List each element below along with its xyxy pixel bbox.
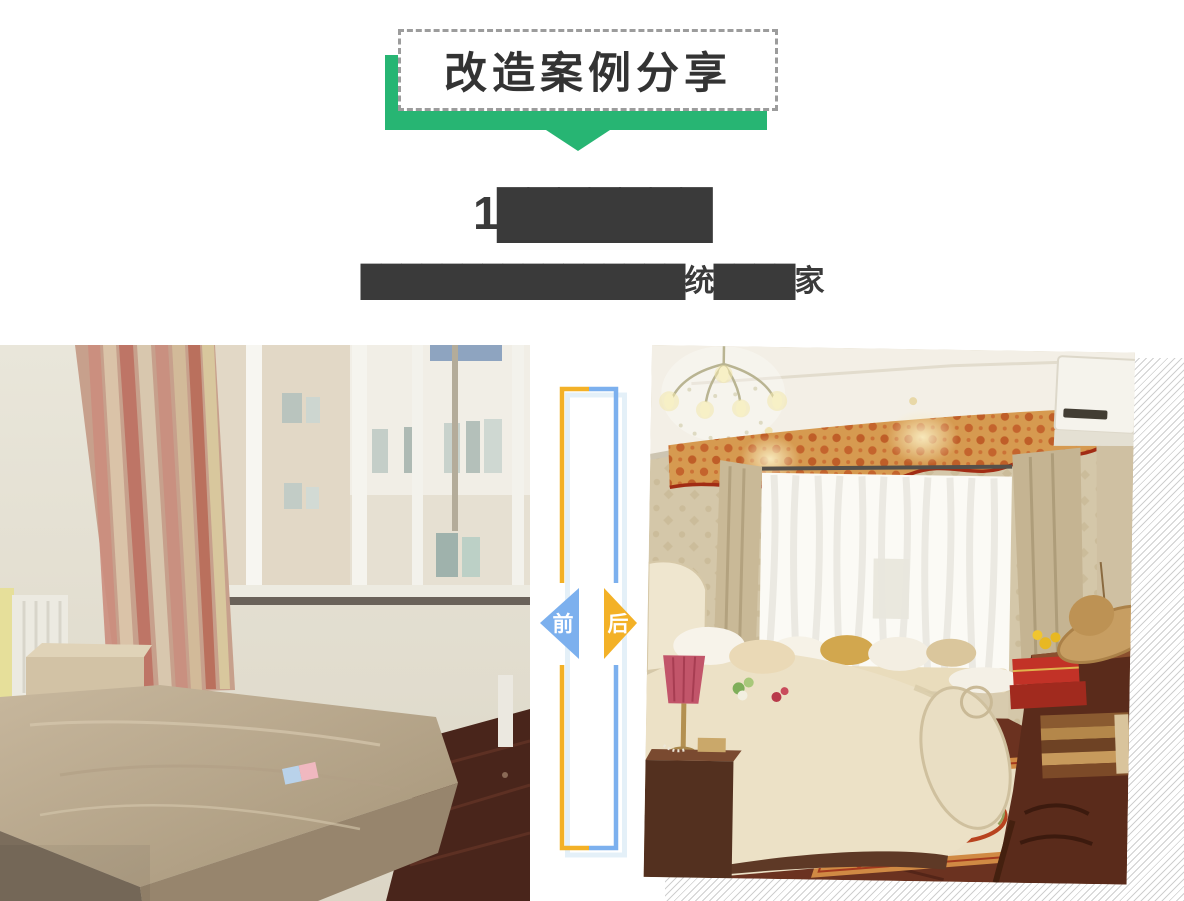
after-photo	[644, 345, 1135, 885]
banner-title: 改造案例分享	[444, 39, 732, 101]
banner-pointer-icon	[546, 130, 610, 151]
after-label: 后	[608, 613, 629, 636]
banner-dashed-box: 改造案例分享	[398, 29, 778, 111]
before-label: 前	[553, 612, 574, 636]
compare-divider: 前 后	[535, 380, 645, 865]
page: 改造案例分享 1███████ ████████████████统████家	[0, 0, 1184, 901]
case-subtitle: ████████████████统████家	[0, 256, 1184, 300]
case-title: 1███████	[0, 186, 1184, 240]
before-photo	[0, 345, 530, 901]
